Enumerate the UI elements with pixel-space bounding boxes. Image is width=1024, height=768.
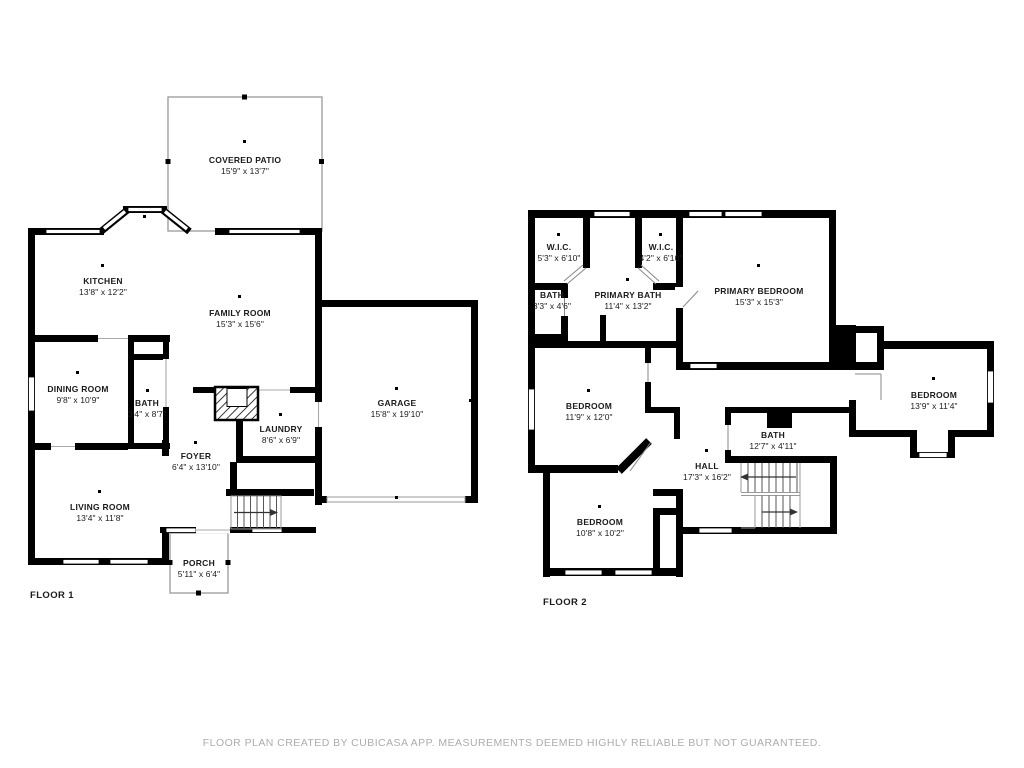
diagonal-wall	[619, 441, 649, 471]
floor1-stairs	[231, 496, 281, 529]
room-label-primary-bath: PRIMARY BATH 11'4" x 13'2"	[594, 290, 661, 312]
room-label-laundry: LAUNDRY 8'6" x 6'9"	[260, 424, 303, 446]
room-label-living-room: LIVING ROOM 13'4" x 11'8"	[70, 502, 130, 524]
room-label-garage: GARAGE 15'8" x 19'10"	[371, 398, 424, 420]
room-label-bath-small: BATH 3'3" x 4'6"	[533, 290, 571, 312]
room-label-covered-patio: COVERED PATIO 15'9" x 13'7"	[209, 155, 281, 177]
room-label-dining-room: DINING ROOM 9'8" x 10'9"	[47, 384, 108, 406]
bay-window	[102, 208, 190, 232]
room-label-primary-bedroom: PRIMARY BEDROOM 15'3" x 15'3"	[714, 286, 803, 308]
room-label-bath-hall: BATH 12'7" x 4'11"	[749, 430, 796, 452]
floor2-label: FLOOR 2	[543, 597, 587, 608]
room-label-bedroom-lower: BEDROOM 10'8" x 10'2"	[576, 517, 624, 539]
room-label-bedroom-left: BEDROOM 11'9" x 12'0"	[565, 401, 612, 423]
floor2-stairs	[740, 463, 800, 528]
room-label-foyer: FOYER 6'4" x 13'10"	[172, 451, 220, 473]
footer-disclaimer: FLOOR PLAN CREATED BY CUBICASA APP. MEAS…	[0, 737, 1024, 749]
room-label-family-room: FAMILY ROOM 15'3" x 15'6"	[209, 308, 271, 330]
fireplace-icon	[215, 387, 258, 420]
room-label-bath-floor1: BATH 3'4" x 8'7"	[128, 398, 166, 420]
floorplan-image: COVERED PATIO 15'9" x 13'7" KITCHEN 13'8…	[0, 0, 1024, 768]
room-label-porch: PORCH 5'11" x 6'4"	[178, 558, 220, 580]
room-label-wic-left: W.I.C. 5'3" x 6'10"	[537, 242, 580, 264]
room-label-kitchen: KITCHEN 13'8" x 12'2"	[79, 276, 127, 298]
room-label-hall: HALL 17'3" x 16'2"	[683, 461, 731, 483]
floorplan-canvas	[0, 0, 1024, 768]
floor1-label: FLOOR 1	[30, 590, 74, 601]
room-label-bedroom-right: BEDROOM 13'9" x 11'4"	[910, 390, 957, 412]
room-label-wic-right: W.I.C. 4'2" x 6'10"	[639, 242, 682, 264]
